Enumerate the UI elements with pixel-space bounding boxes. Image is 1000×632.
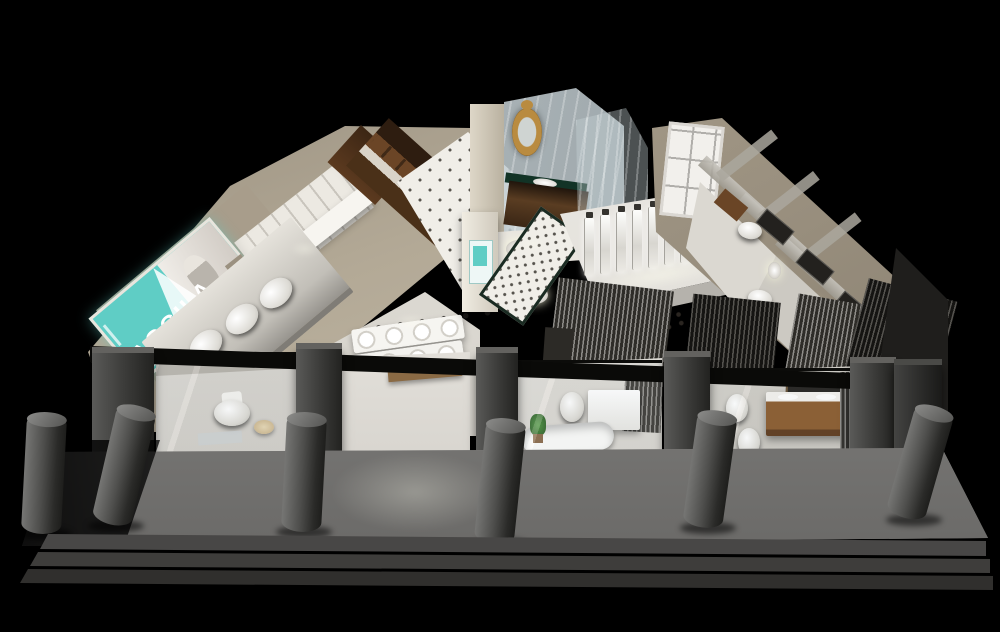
downlight-glow <box>395 315 429 329</box>
entrance-light-spill <box>330 452 500 532</box>
mini-poster-image <box>473 246 487 266</box>
shower-column <box>616 212 626 272</box>
gold-mirror-crest <box>521 100 533 110</box>
downlight-glow <box>520 238 546 250</box>
shower-column <box>632 210 642 270</box>
round-column <box>21 413 67 535</box>
downlight-glow <box>290 242 320 256</box>
pedestal-basin <box>768 262 781 279</box>
showroom-render: AGGILA <box>0 0 1000 632</box>
round-column <box>281 413 327 533</box>
gold-ornate-mirror <box>512 108 542 156</box>
shower-column <box>584 218 594 276</box>
shower-column <box>600 215 610 274</box>
